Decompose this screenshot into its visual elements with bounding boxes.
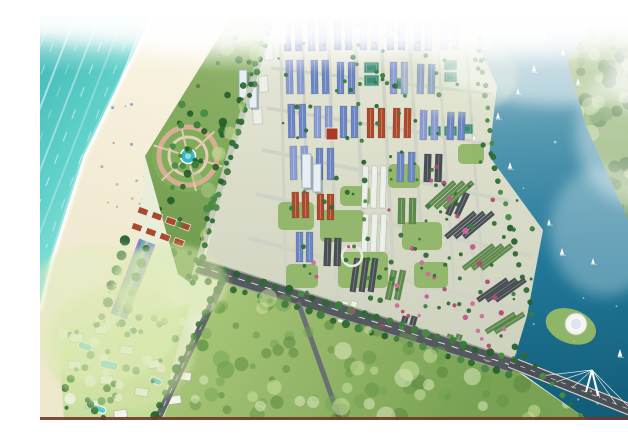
highrise-tower xyxy=(302,154,311,188)
masterplan-svg xyxy=(40,16,628,420)
aerial-masterplan-image xyxy=(40,16,628,420)
horizon-haze xyxy=(40,16,628,72)
red-landmark-building xyxy=(326,128,338,140)
image-bottom-edge xyxy=(40,417,628,420)
highrise-tower xyxy=(313,164,321,192)
